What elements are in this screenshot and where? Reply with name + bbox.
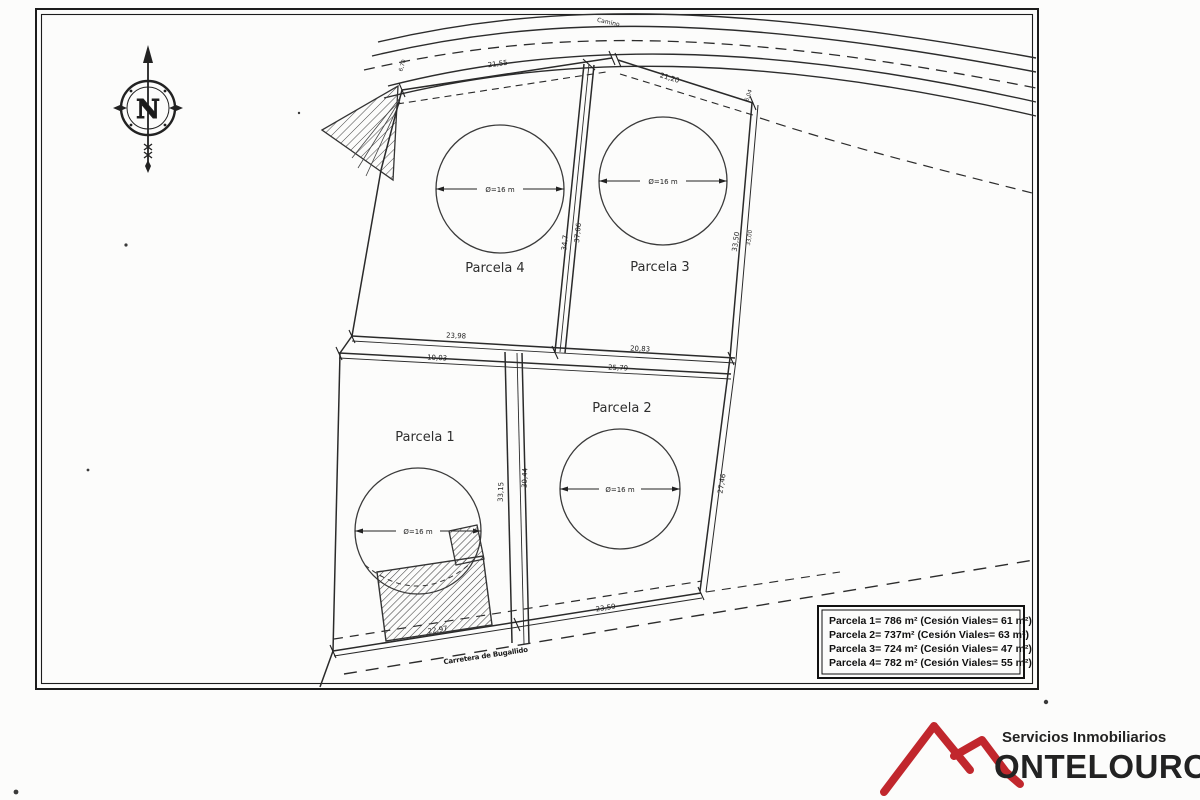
hatched-building-footprint (365, 525, 492, 641)
parcela-1-label: Parcela 1 (395, 430, 454, 445)
dim-lower-road-a: 33,15 (497, 482, 506, 502)
bottom-road-name-label: Carretera de Bugallido (443, 646, 529, 667)
logo-tagline-text: Servicios Inmobiliarios (1002, 729, 1166, 746)
site-plan-drawing: N (0, 0, 1200, 800)
parcela-3-diameter-label: Ø=16 m (648, 178, 678, 186)
parcela-2-diameter-label: Ø=16 m (605, 486, 635, 494)
parcela-3-group: Ø=16 m Parcela 3 (599, 117, 727, 275)
dim-div-bottom-left: 10,03 (427, 353, 447, 362)
dim-mid-road-a: 34,7 (560, 235, 570, 251)
logo-brand-text: ONTELOURO (994, 748, 1200, 785)
hatched-wedge-area (322, 86, 400, 180)
scan-specks (14, 112, 1049, 795)
legend-line-parcela-4: Parcela 4= 782 m² (Cesión Viales= 55 m²) (829, 657, 1032, 669)
parcela-4-group: Ø=16 m Parcela 4 (436, 125, 564, 276)
dim-div-top-right: 20,83 (630, 344, 650, 353)
drawing-border-frame (36, 9, 1038, 689)
legend-line-parcela-1: Parcela 1= 786 m² (Cesión Viales= 61 m²) (829, 615, 1032, 627)
parcela-4-diameter-label: Ø=16 m (485, 186, 515, 194)
legend-line-parcela-2: Parcela 2= 737m² (Cesión Viales= 63 m²) (829, 629, 1029, 641)
parcela-2-group: Ø=16 m Parcela 2 (560, 401, 680, 549)
parcela-2-label: Parcela 2 (592, 401, 651, 416)
top-road-lines (364, 14, 1036, 194)
dim-p3-top: 21,20 (659, 71, 681, 85)
parcela-1-group: Ø=16 m Parcela 1 (355, 430, 492, 641)
legend-line-parcela-3: Parcela 3= 724 m² (Cesión Viales= 47 m²) (829, 643, 1032, 655)
legend-box: Parcela 1= 786 m² (Cesión Viales= 61 m²)… (818, 606, 1032, 678)
dim-right-upper-b: 33,00 (746, 229, 754, 246)
dim-div-top-left: 23,98 (446, 331, 466, 340)
parcela-1-diameter-label: Ø=16 m (403, 528, 433, 536)
parcela-4-label: Parcela 4 (465, 261, 524, 276)
parcela-3-label: Parcela 3 (630, 260, 689, 275)
dim-mid-road-b: 37,06 (573, 222, 583, 243)
montelouro-logo: Servicios Inmobiliarios ONTELOURO (884, 726, 1200, 792)
compass-north-label: N (136, 95, 160, 125)
dim-div-bottom-right: 25,79 (608, 363, 628, 372)
dim-right-lower: 27,46 (717, 473, 728, 495)
scanned-site-plan-page: N (0, 0, 1200, 800)
dim-lower-road-b: 30,44 (521, 467, 530, 488)
compass-rose-icon: N (113, 45, 183, 173)
dim-corner-right: 6,04 (744, 88, 754, 102)
dim-corner-left: 6,70 (398, 58, 408, 72)
dim-p4-top: 21,55 (487, 59, 508, 70)
